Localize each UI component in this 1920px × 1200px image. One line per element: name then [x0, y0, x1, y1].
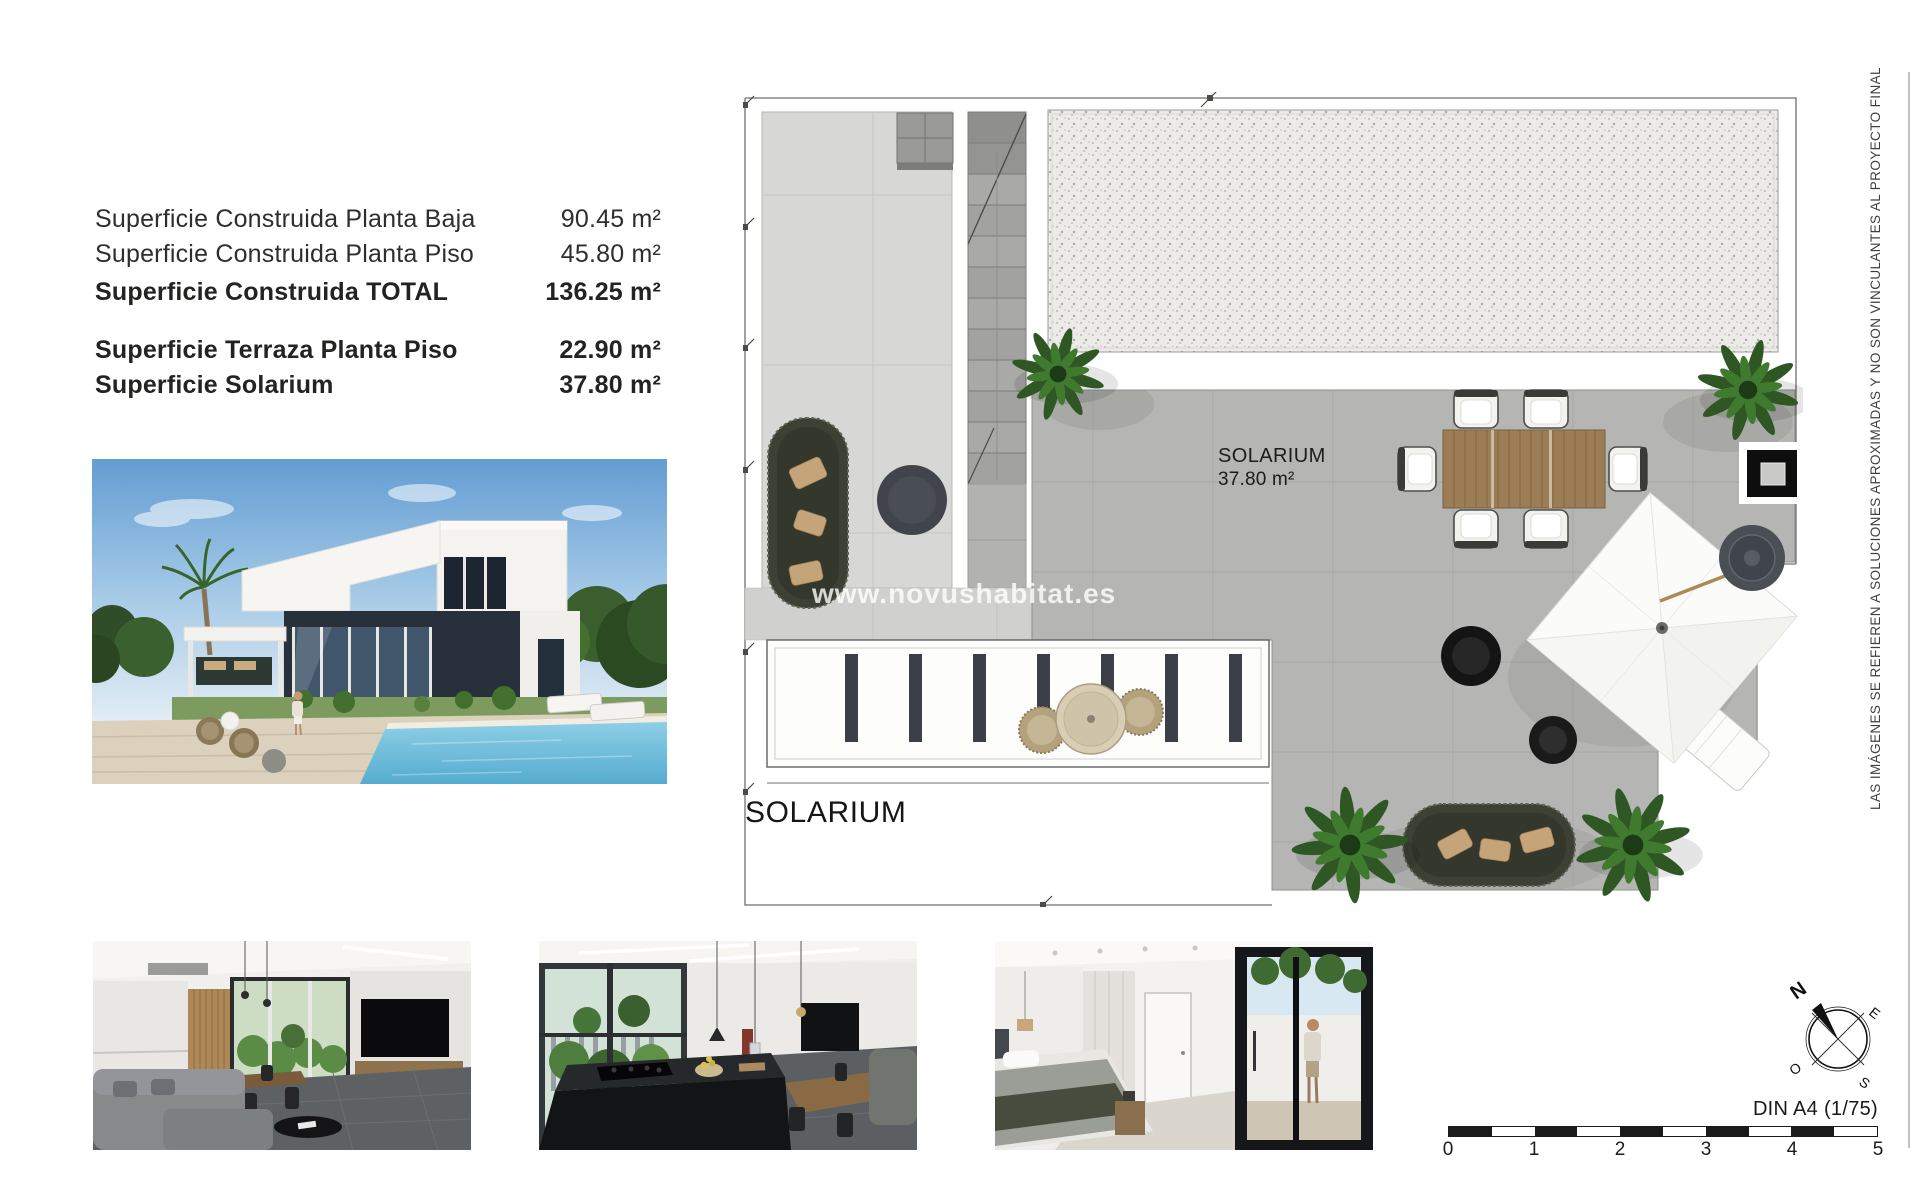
- scale-bar-segments: [1448, 1126, 1878, 1137]
- compass-rose: N E O S: [1790, 972, 1886, 1102]
- floor-plan-svg: [743, 92, 1803, 907]
- solarium-room-label: SOLARIUM 37.80 m²: [1218, 444, 1326, 492]
- surface-label: Superficie Construida Planta Piso: [95, 240, 474, 269]
- room-name: SOLARIUM: [1218, 444, 1326, 468]
- bedroom-illustration: [995, 941, 1373, 1150]
- surface-label: Superficie Construida TOTAL: [95, 278, 448, 307]
- surface-value: 136.25 m²: [545, 278, 661, 307]
- interior-photo-living: [93, 941, 471, 1150]
- page-border-line: [1908, 72, 1910, 1148]
- compass-south-label: S: [1856, 1073, 1873, 1091]
- tv-screen: [801, 1003, 859, 1051]
- window-band: [767, 640, 1269, 783]
- room-area: 37.80 m²: [1218, 468, 1326, 492]
- staircase: [968, 112, 1026, 588]
- floor-plan: [743, 92, 1803, 907]
- sheet-format-label: DIN A4 (1/75): [1448, 1098, 1878, 1121]
- kitchen-illustration: [539, 941, 917, 1150]
- door: [1145, 993, 1191, 1105]
- surface-row: Superficie Solarium 37.80 m²: [95, 371, 661, 400]
- living-room-illustration: [93, 941, 471, 1150]
- gravel-roof: [1048, 110, 1778, 352]
- nightstand: [1115, 1101, 1145, 1135]
- scale-bar-ticks: 0 1 2 3 4 5: [1448, 1139, 1878, 1163]
- surface-row: Superficie Construida Planta Piso 45.80 …: [95, 240, 661, 269]
- surface-table: Superficie Construida Planta Baja 90.45 …: [95, 205, 661, 415]
- scale-tick: 0: [1443, 1139, 1454, 1161]
- compass-east-label: E: [1866, 1004, 1883, 1022]
- bbq-module: [1739, 442, 1803, 504]
- surface-row: Superficie Terraza Planta Piso 22.90 m²: [95, 336, 661, 365]
- plan-section-title: SOLARIUM: [745, 796, 907, 830]
- surface-label: Superficie Solarium: [95, 371, 334, 400]
- tv-screen: [361, 999, 449, 1057]
- bottom-sofa: [1403, 804, 1575, 886]
- scale-bar: DIN A4 (1/75) 0 1 2 3 4 5: [1448, 1098, 1878, 1163]
- scale-tick: 4: [1787, 1139, 1798, 1161]
- watermark: www.novushabitat.es: [812, 578, 1116, 610]
- surface-row-total: Superficie Construida TOTAL 136.25 m²: [95, 278, 661, 307]
- interior-photo-bedroom: [995, 941, 1373, 1150]
- surface-value: 37.80 m²: [559, 371, 661, 400]
- scale-tick: 1: [1529, 1139, 1540, 1161]
- scale-tick: 3: [1701, 1139, 1712, 1161]
- surface-row: Superficie Construida Planta Baja 90.45 …: [95, 205, 661, 234]
- compass-north-label: N: [1790, 978, 1811, 1004]
- surface-label: Superficie Terraza Planta Piso: [95, 336, 458, 365]
- scale-tick: 5: [1873, 1139, 1884, 1161]
- surface-value: 22.90 m²: [559, 336, 661, 365]
- villa-exterior-illustration: [92, 459, 667, 784]
- surface-label: Superficie Construida Planta Baja: [95, 205, 475, 234]
- upper-steps: [897, 113, 953, 170]
- scale-tick: 2: [1615, 1139, 1626, 1161]
- glass-slider: [1235, 947, 1373, 1150]
- compass-west-label: O: [1790, 1059, 1805, 1078]
- pool: [360, 716, 667, 784]
- disclaimer-vertical-text: LAS IMÁGENES SE REFIEREN A SOLUCIONES AP…: [1868, 90, 1886, 810]
- surface-value: 90.45 m²: [561, 205, 661, 234]
- interior-photo-kitchen: [539, 941, 917, 1150]
- dining-table: [1443, 430, 1605, 508]
- villa-exterior-photo: [92, 459, 667, 784]
- surface-value: 45.80 m²: [561, 240, 661, 269]
- sofa: [869, 1049, 917, 1125]
